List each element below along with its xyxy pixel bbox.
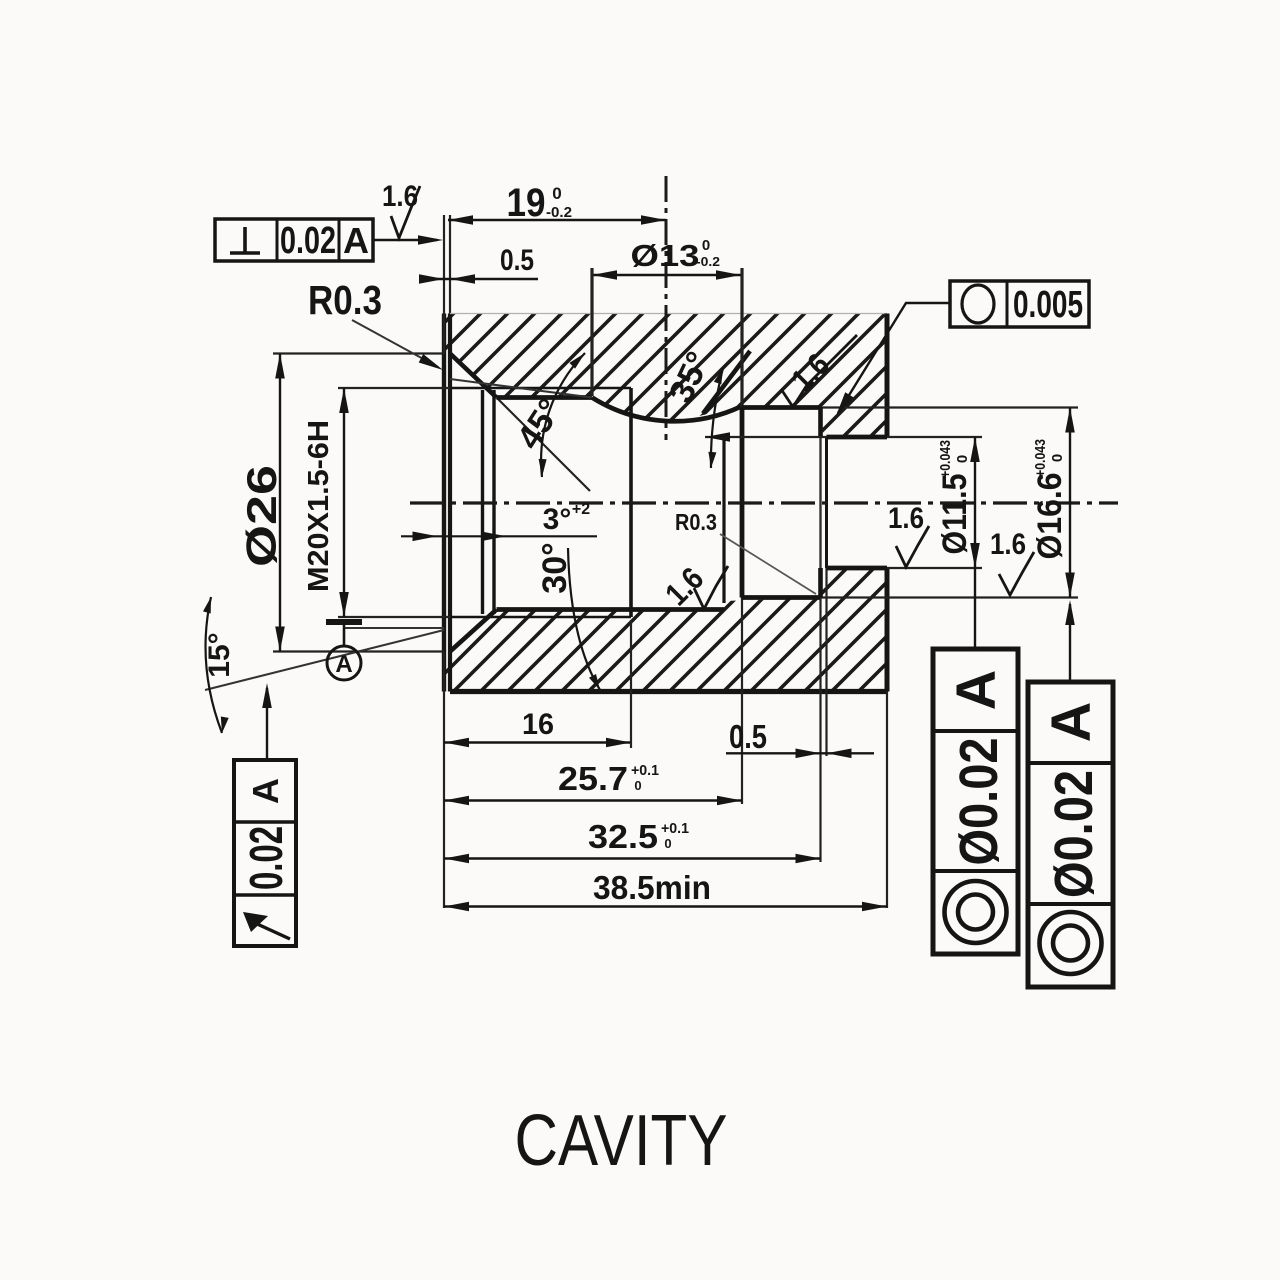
svg-text:0: 0 [552, 184, 561, 203]
svg-text:Ø0.02: Ø0.02 [949, 738, 1009, 866]
svg-text:R0.3: R0.3 [308, 277, 382, 323]
svg-text:Ø11.5: Ø11.5 [936, 474, 974, 555]
svg-text:1.6: 1.6 [888, 502, 924, 535]
svg-text:R0.3: R0.3 [675, 509, 717, 535]
svg-text:0: 0 [954, 455, 971, 463]
svg-text:CAVITY: CAVITY [515, 1101, 728, 1181]
svg-text:Ø26: Ø26 [238, 465, 285, 567]
svg-text:0.5: 0.5 [500, 244, 534, 277]
svg-text:0.005: 0.005 [1013, 284, 1083, 326]
svg-text:+0.043: +0.043 [1032, 439, 1049, 477]
svg-text:+2: +2 [572, 501, 590, 518]
svg-text:0.02: 0.02 [240, 826, 292, 890]
svg-text:15°: 15° [203, 632, 236, 677]
svg-text:A: A [1039, 702, 1102, 742]
svg-text:+0.1: +0.1 [661, 820, 689, 837]
svg-text:A: A [245, 778, 286, 804]
svg-text:3°: 3° [543, 503, 572, 536]
svg-text:M20X1.5-6H: M20X1.5-6H [303, 420, 335, 592]
svg-text:-0.2: -0.2 [696, 254, 720, 269]
svg-text:0: 0 [702, 237, 710, 254]
svg-text:A: A [944, 670, 1007, 710]
svg-text:0: 0 [1049, 454, 1066, 462]
svg-text:19: 19 [507, 181, 546, 225]
svg-text:1.6: 1.6 [382, 180, 418, 213]
svg-text:32.5: 32.5 [588, 818, 658, 855]
svg-text:1.6: 1.6 [990, 528, 1026, 561]
svg-text:38.5min: 38.5min [593, 869, 711, 906]
svg-text:A: A [343, 220, 369, 261]
svg-text:0.5: 0.5 [729, 718, 767, 755]
svg-text:16: 16 [522, 708, 554, 741]
svg-text:A: A [335, 651, 352, 678]
svg-text:Ø16.6: Ø16.6 [1031, 473, 1069, 560]
svg-text:+0.1: +0.1 [631, 762, 659, 779]
svg-text:0.02: 0.02 [280, 220, 336, 262]
svg-text:25.7: 25.7 [558, 760, 628, 797]
svg-text:+0.043: +0.043 [937, 440, 954, 478]
svg-text:0: 0 [634, 778, 641, 793]
svg-text:Ø13: Ø13 [631, 238, 700, 273]
svg-text:-0.2: -0.2 [546, 204, 572, 221]
svg-text:0: 0 [664, 836, 671, 851]
svg-text:Ø0.02: Ø0.02 [1044, 770, 1104, 898]
